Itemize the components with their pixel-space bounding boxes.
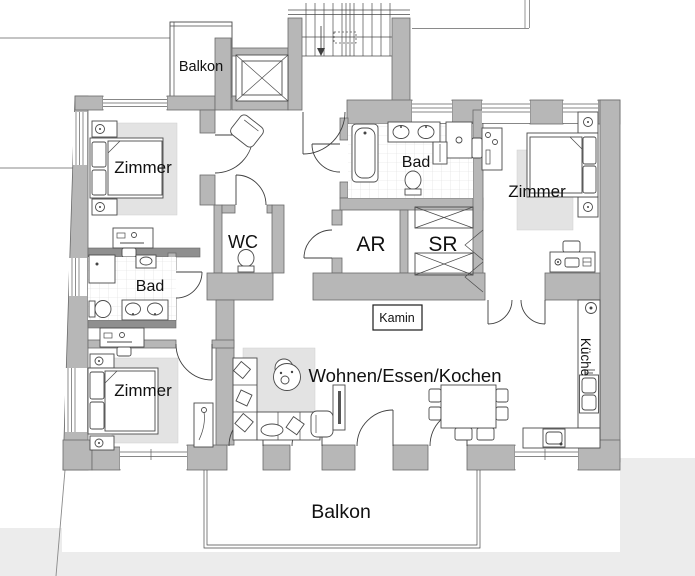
living-room — [233, 348, 508, 440]
label-kamin: Kamin — [379, 311, 414, 325]
dining-set-icon — [429, 385, 508, 440]
wardrobe-icon — [194, 403, 213, 447]
double-sink-icon — [122, 300, 168, 320]
bedroom-top-left — [90, 121, 177, 257]
label-kueche: Küche — [578, 338, 593, 376]
desk-icon — [550, 241, 595, 272]
double-sink-icon — [388, 122, 440, 142]
armchair-icon — [311, 411, 333, 437]
label-ar: AR — [356, 233, 385, 256]
label-wc: WC — [228, 232, 258, 252]
toilet-icon — [89, 301, 111, 318]
label-wohnen-essen-kochen: Wohnen/Essen/Kochen — [308, 365, 501, 386]
label-bad-right: Bad — [402, 154, 430, 171]
label-sr: SR — [428, 233, 457, 256]
label-balkon-top: Balkon — [179, 59, 223, 75]
label-zimmer-top-left: Zimmer — [114, 158, 172, 177]
toilet-icon — [405, 171, 421, 195]
sink-icon — [136, 255, 156, 268]
bathtub-icon — [352, 124, 378, 182]
label-balkon-bottom: Balkon — [311, 501, 371, 523]
desk-icon — [100, 328, 144, 356]
floor-plan: Balkon Zimmer Bad Zimmer WC Bad AR SR Zi… — [0, 0, 695, 576]
tv-board-icon — [333, 385, 345, 430]
toilet-icon — [238, 250, 254, 273]
armchair-icon — [229, 113, 266, 149]
entrance-door-icon — [303, 112, 345, 154]
label-bad-left: Bad — [136, 278, 164, 295]
floor-plan-drawing: Balkon Zimmer Bad Zimmer WC Bad AR SR Zi… — [0, 0, 695, 576]
wc-room — [238, 250, 254, 273]
bed-icon — [88, 368, 158, 434]
shower-icon — [89, 255, 115, 283]
label-zimmer-bottom-left: Zimmer — [114, 381, 172, 400]
elevator-icon — [236, 55, 288, 101]
bedroom-right — [465, 112, 598, 292]
label-zimmer-right: Zimmer — [508, 182, 566, 201]
